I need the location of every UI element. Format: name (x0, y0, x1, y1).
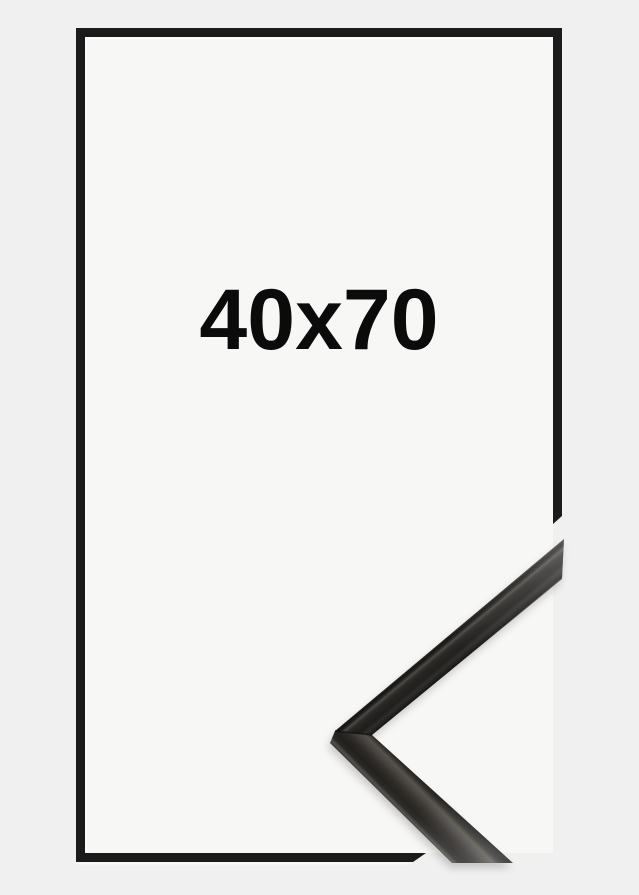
size-label: 40x70 (76, 277, 562, 363)
frame-illustration (0, 0, 639, 895)
frame-product-image: 40x70 (0, 0, 639, 895)
frame-inner-area (85, 37, 553, 853)
